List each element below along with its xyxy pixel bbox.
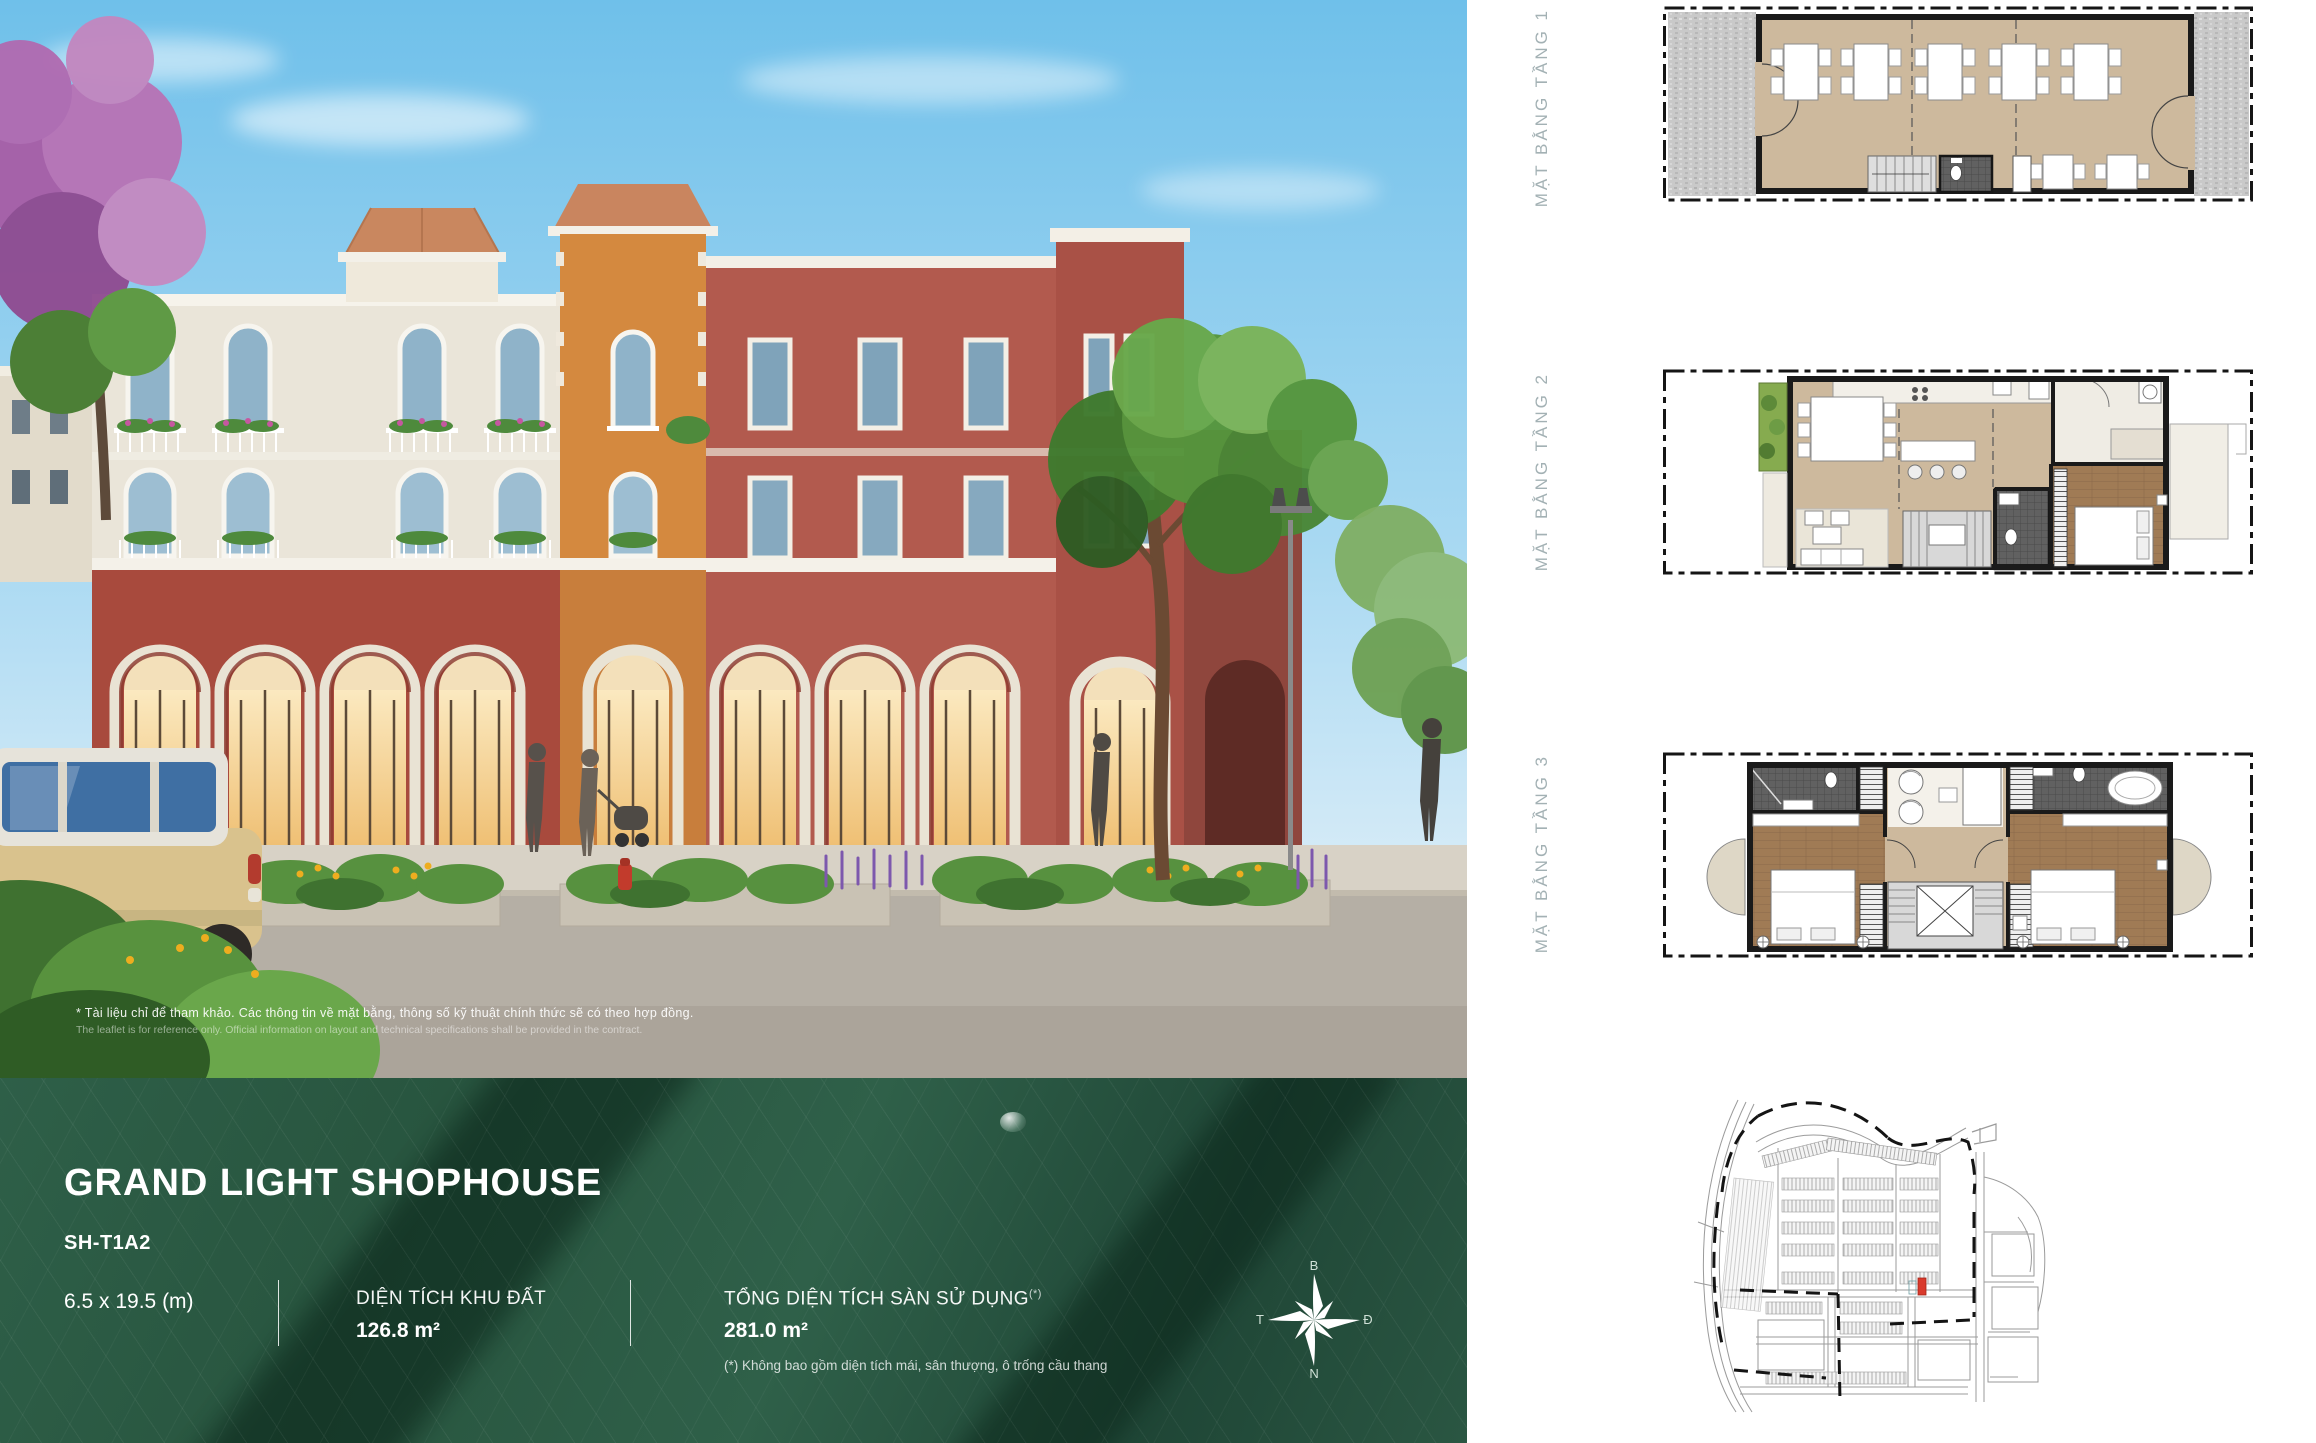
site-location-map	[1678, 1082, 2058, 1432]
floor-area-asterisk: (*)	[1029, 1288, 1042, 1300]
land-area-block: DIỆN TÍCH KHU ĐẤT 126.8 m²	[356, 1288, 546, 1343]
floor-plan-2	[1663, 369, 2253, 580]
lot-dimensions: 6.5 x 19.5 (m)	[64, 1290, 194, 1314]
floor-area-block: TỔNG DIỆN TÍCH SÀN SỬ DỤNG(*) 281.0 m² (…	[724, 1288, 1107, 1373]
disclaimer-line-en: The leaflet is for reference only. Offic…	[76, 1023, 694, 1039]
kitchen-island	[1901, 441, 1975, 479]
stairs	[1903, 511, 1991, 567]
floor-plan-3	[1663, 752, 2253, 963]
floor-plan-1	[1663, 6, 2253, 207]
compass-north-label: B	[1310, 1258, 1319, 1273]
compass-south-label: N	[1309, 1366, 1318, 1381]
page-title: GRAND LIGHT SHOPHOUSE	[64, 1162, 602, 1205]
compass-west-label: T	[1256, 1312, 1264, 1327]
leaf-shadow	[135, 1078, 704, 1443]
floor-plan-1-label: MẶT BẰNG TẦNG 1	[1532, 8, 1552, 207]
bathroom	[1995, 489, 2049, 569]
disclaimer-line-vi: * Tài liệu chỉ để tham khảo. Các thông t…	[76, 1004, 694, 1023]
floor-plan-2-label: MẶT BẰNG TẦNG 2	[1532, 372, 1552, 571]
unit-code: SH-T1A2	[64, 1232, 151, 1255]
bathroom	[1940, 156, 1992, 192]
water-drop	[1000, 1112, 1026, 1132]
fire-hydrant	[618, 858, 632, 890]
dining-set	[1798, 397, 1896, 461]
sitting-room	[1888, 765, 2003, 827]
info-panel: GRAND LIGHT SHOPHOUSE SH-T1A2 6.5 x 19.5…	[0, 1078, 1467, 1443]
shophouse-scene	[0, 0, 1467, 1078]
compass-rose-icon: B Đ N T	[1252, 1258, 1376, 1382]
photo-disclaimer: * Tài liệu chỉ để tham khảo. Các thông t…	[76, 1004, 694, 1039]
floor-plan-3-label: MẶT BẰNG TẦNG 3	[1532, 754, 1552, 953]
compass-east-label: Đ	[1363, 1312, 1372, 1327]
stairwell	[1888, 882, 2003, 949]
divider	[278, 1280, 279, 1346]
hero-rendering: * Tài liệu chỉ để tham khảo. Các thông t…	[0, 0, 1467, 1078]
floor-area-note: (*) Không bao gồm diện tích mái, sân thư…	[724, 1358, 1107, 1373]
unit-location-marker	[1918, 1278, 1926, 1295]
land-area-label: DIỆN TÍCH KHU ĐẤT	[356, 1288, 546, 1310]
land-area-value: 126.8 m²	[356, 1319, 546, 1343]
stairs	[1868, 156, 1936, 192]
divider	[630, 1280, 631, 1346]
bathroom-left	[1748, 765, 1858, 812]
floor-area-label: TỔNG DIỆN TÍCH SÀN SỬ DỤNG(*)	[724, 1288, 1107, 1310]
sofa-set	[1796, 509, 1888, 567]
floor-area-value: 281.0 m²	[724, 1319, 1107, 1343]
brochure-page: * Tài liệu chỉ để tham khảo. Các thông t…	[0, 0, 2316, 1443]
